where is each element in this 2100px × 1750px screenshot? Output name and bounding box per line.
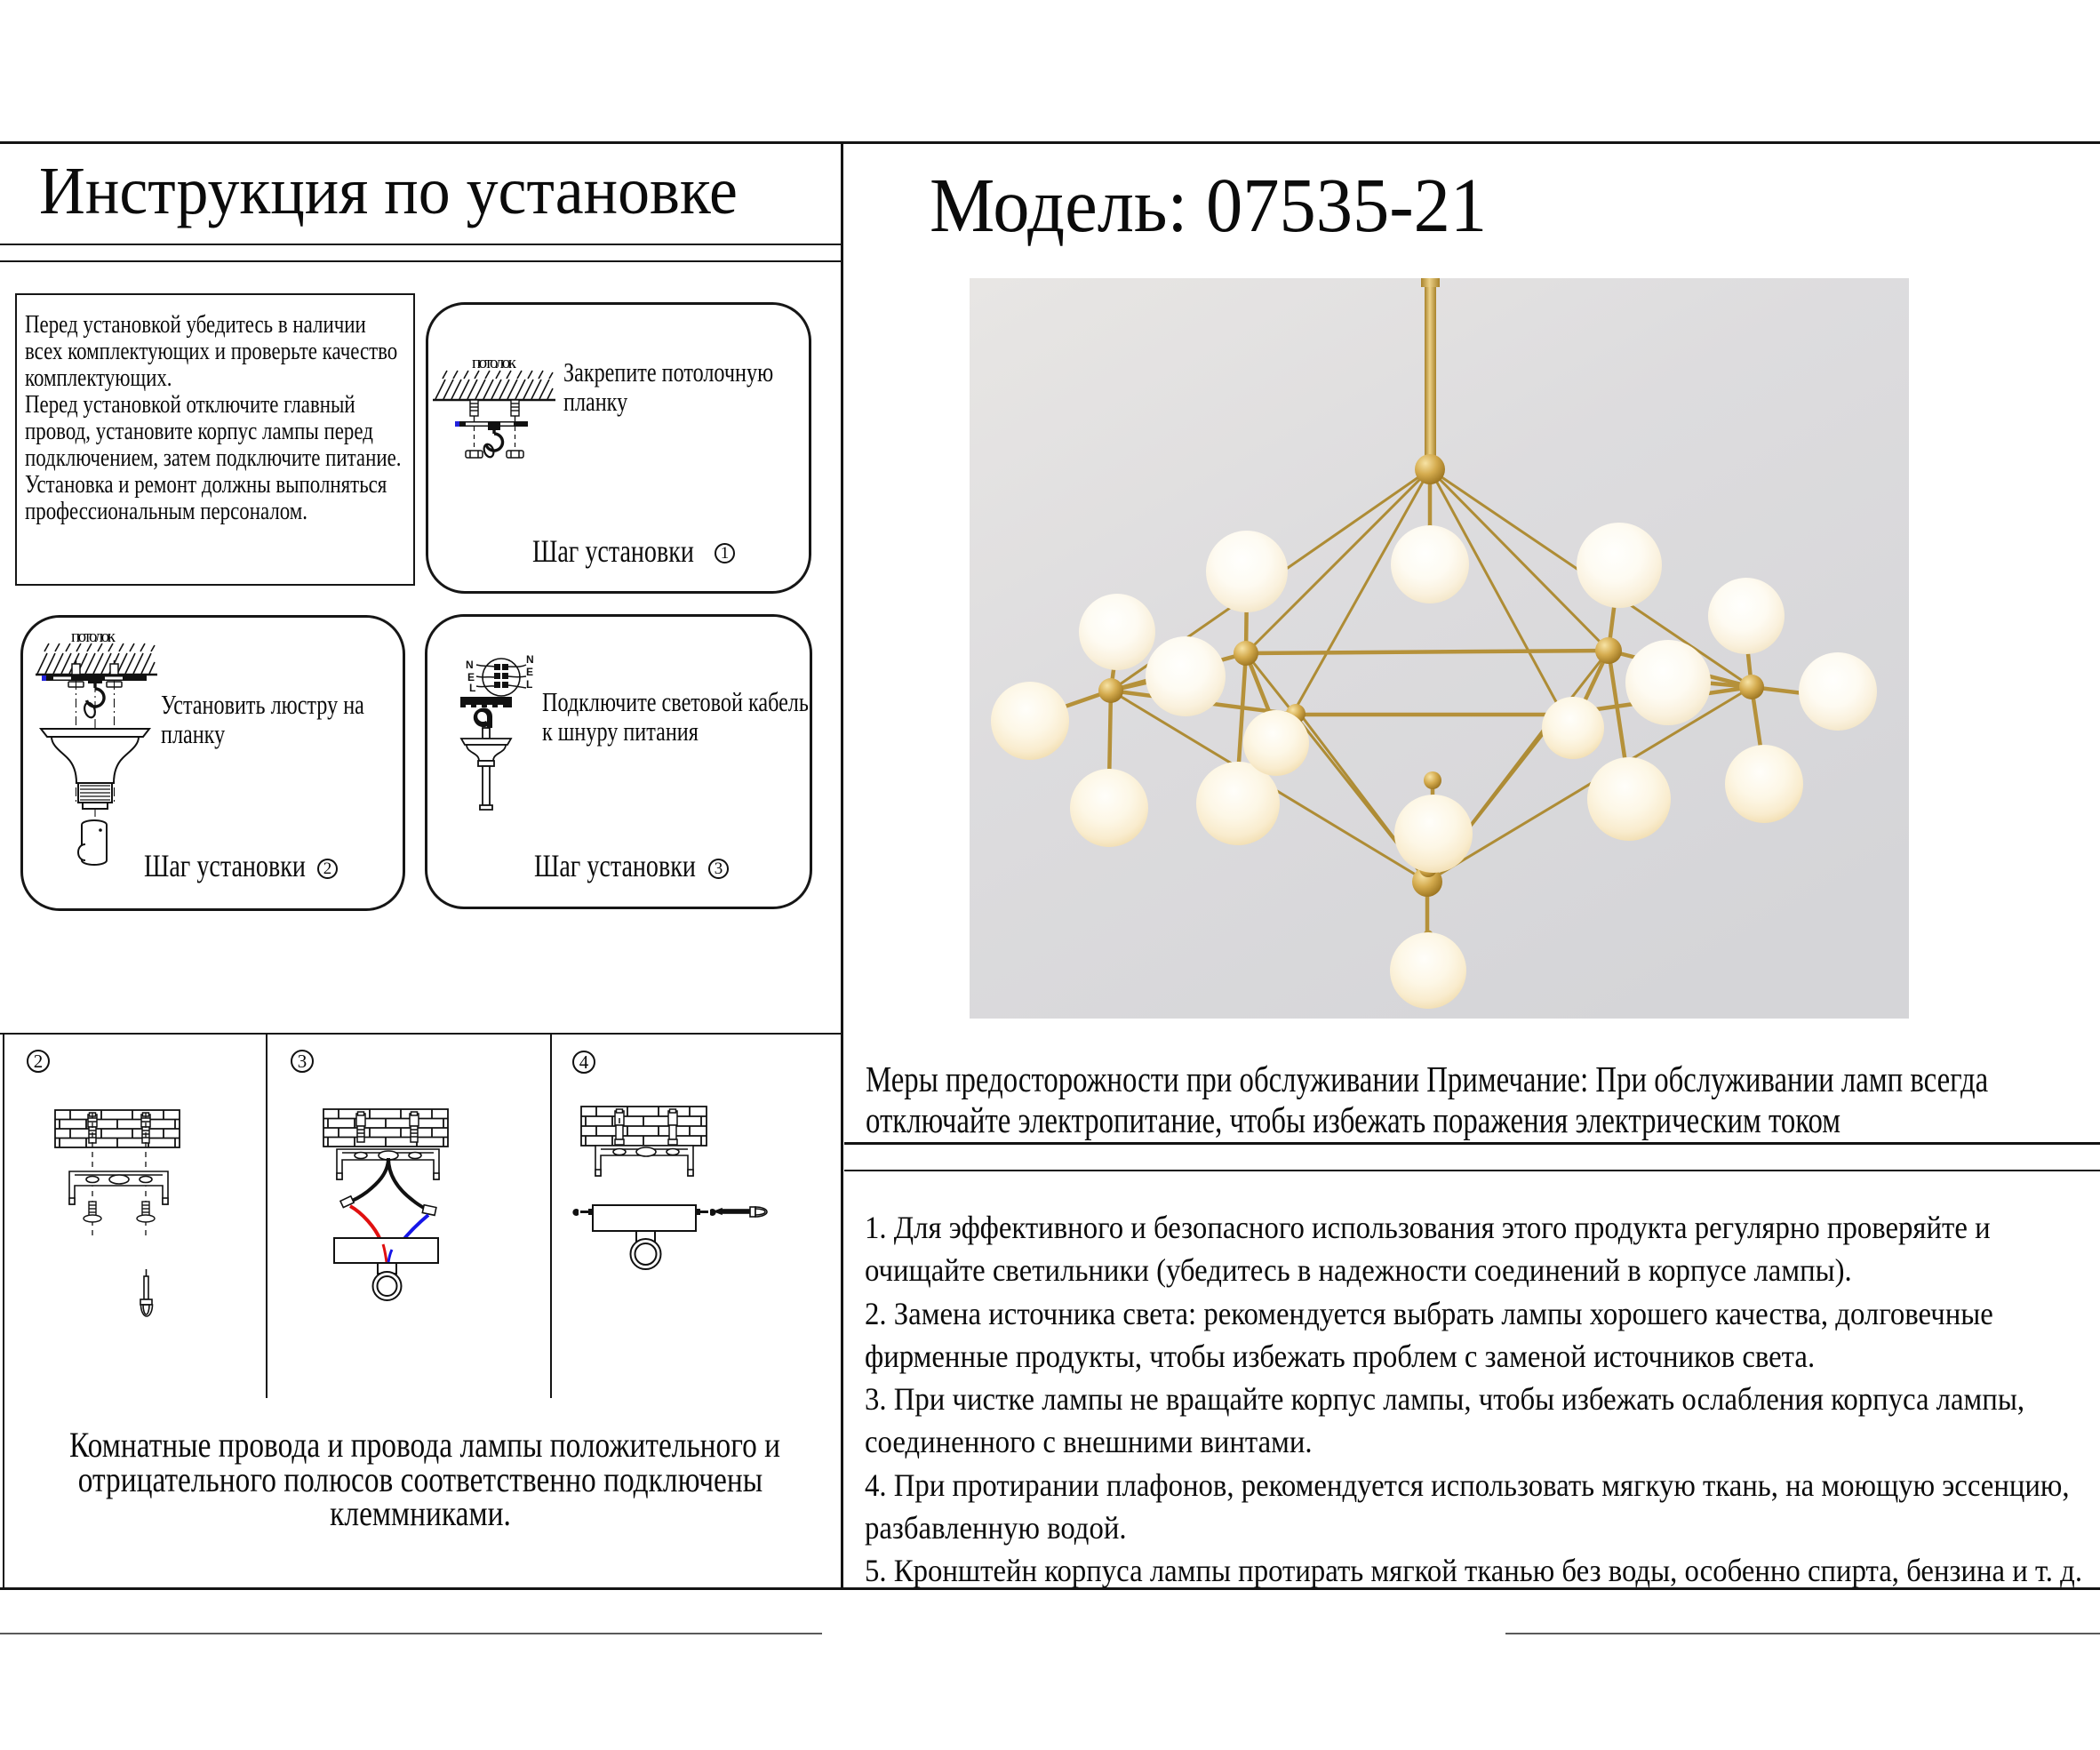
svg-text:потолок: потолок	[472, 354, 517, 372]
svg-text:N: N	[526, 653, 534, 666]
svg-text:L: L	[526, 678, 532, 691]
svg-text:N: N	[466, 659, 474, 671]
svg-text:L: L	[469, 682, 475, 694]
svg-text:потолок: потолок	[71, 627, 116, 646]
svg-text:E: E	[526, 666, 533, 678]
